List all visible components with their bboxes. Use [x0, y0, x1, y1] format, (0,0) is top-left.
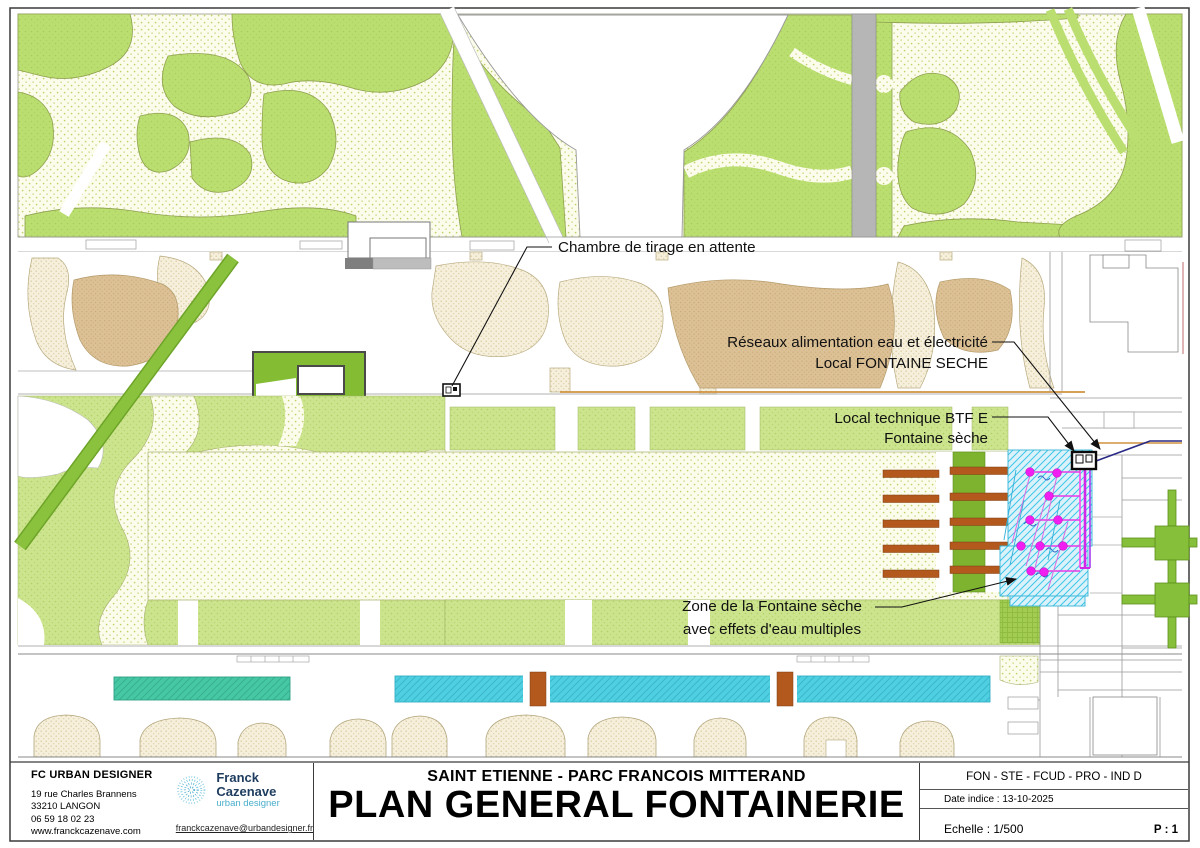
- scale-label: Echelle : 1/500: [944, 822, 1023, 836]
- page-number: P : 1: [1154, 824, 1178, 836]
- title-block: FC URBAN DESIGNER 19 rue Charles Brannen…: [11, 763, 1188, 840]
- drawing-sheet: Chambre de tirage en attente Réseaux ali…: [0, 0, 1200, 848]
- email-link[interactable]: franckcazenave@urbandesigner.fr: [176, 823, 313, 833]
- dry-fountain-zone: [1000, 450, 1096, 606]
- gray-path: [852, 14, 876, 237]
- company-phone: 06 59 18 02 23: [31, 814, 168, 826]
- logo-spiral-icon: [174, 771, 209, 809]
- great-lawn: [148, 452, 1008, 600]
- title-block-company-cell: FC URBAN DESIGNER 19 rue Charles Brannen…: [11, 763, 313, 840]
- company-address-2: 33210 LANGON: [31, 801, 168, 813]
- annotation-reseaux-1: Réseaux alimentation eau et électricité: [727, 334, 988, 351]
- date-indice: Date indice : 13-10-2025: [920, 790, 1188, 809]
- annotation-local-2: Fontaine sèche: [884, 430, 988, 447]
- technical-room-symbol: [1072, 452, 1096, 469]
- bottom-planting-strip: [34, 715, 954, 757]
- company-address-1: 19 rue Charles Brannens: [31, 789, 168, 801]
- logo-name: Franck Cazenave: [216, 771, 313, 798]
- title-block-title-cell: SAINT ETIENNE - PARC FRANCOIS MITTERAND …: [313, 763, 920, 840]
- annotation-chambre: Chambre de tirage en attente: [558, 239, 756, 256]
- annotation-local-1: Local technique BTF E: [834, 410, 988, 427]
- annotation-reseaux-2: Local FONTAINE SECHE: [815, 355, 988, 372]
- building-footprint: [345, 222, 431, 269]
- site-plan-drawing: Chambre de tirage en attente Réseaux ali…: [0, 0, 1200, 848]
- logo-tagline: urban designer: [216, 798, 313, 809]
- navy-network-line: [1096, 441, 1182, 461]
- left-pool: [114, 677, 290, 700]
- drawing-title: PLAN GENERAL FONTAINERIE: [314, 786, 919, 826]
- tree-grid: [1122, 490, 1197, 648]
- reference-code: FON - STE - FCUD - PRO - IND D: [920, 763, 1188, 790]
- annotation-zone-1: Zone de la Fontaine sèche: [682, 598, 862, 615]
- title-block-meta-cell: FON - STE - FCUD - PRO - IND D Date indi…: [920, 763, 1188, 840]
- chambre-tirage-symbol: [443, 384, 460, 396]
- company-name: FC URBAN DESIGNER: [31, 769, 168, 781]
- green-structure: [253, 352, 365, 398]
- annotation-zone-2: avec effets d'eau multiples: [683, 621, 862, 638]
- long-pool: [395, 676, 990, 702]
- top-park-band: [18, 7, 1182, 243]
- company-website: www.franckcazenave.com: [31, 826, 168, 838]
